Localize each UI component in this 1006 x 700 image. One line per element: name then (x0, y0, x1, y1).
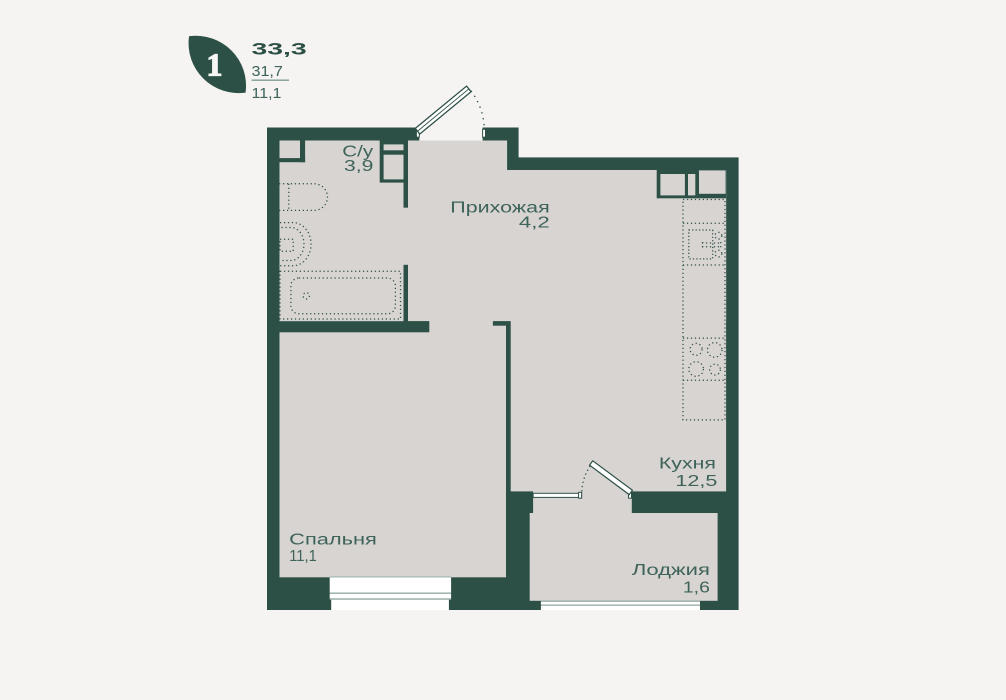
svg-text:31,7: 31,7 (252, 64, 283, 80)
svg-text:11,1: 11,1 (252, 86, 282, 102)
svg-text:4,2: 4,2 (519, 215, 550, 232)
svg-text:33,3: 33,3 (252, 39, 307, 58)
svg-text:Кухня: Кухня (659, 455, 716, 472)
svg-text:Лоджия: Лоджия (632, 562, 710, 579)
svg-text:11,1: 11,1 (289, 548, 317, 565)
svg-text:Спальня: Спальня (289, 532, 377, 549)
svg-text:1: 1 (207, 47, 223, 83)
svg-text:12,5: 12,5 (675, 473, 717, 490)
svg-text:1,6: 1,6 (683, 579, 710, 596)
svg-text:3,9: 3,9 (344, 158, 373, 175)
